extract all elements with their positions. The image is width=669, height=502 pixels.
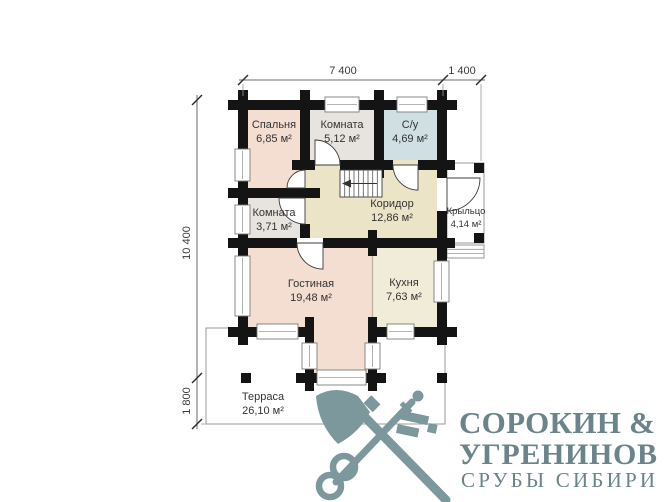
label-bedroom: Спальня xyxy=(252,119,296,131)
key-bow-ring xyxy=(319,475,341,497)
log-end-stub xyxy=(374,90,384,100)
label-living: Гостиная xyxy=(288,278,334,290)
dim-width-porch: 1 400 xyxy=(448,65,476,77)
porch-post xyxy=(474,233,484,243)
wall-bedroom-room xyxy=(300,100,310,160)
area-room2: 3,71 м² xyxy=(256,221,292,233)
area-corridor: 12,86 м² xyxy=(371,212,413,224)
wall-bath-corridor xyxy=(418,160,455,170)
wall-room2-right xyxy=(300,224,310,238)
staircase xyxy=(340,170,382,197)
floor-plan-page: Спальня 6,85 м² Комната 5,12 м² С/у 4,69… xyxy=(0,0,669,502)
wall-bedroom-bottom xyxy=(228,188,320,198)
log-end-stub xyxy=(368,230,377,238)
label-room2: Комната xyxy=(252,207,296,219)
label-corridor: Коридор xyxy=(370,198,413,210)
logo-line-1: СОРОКИН & xyxy=(459,405,655,440)
company-logo: СОРОКИН & УГРЕНИНОВ СРУБЫ СИБИРИ xyxy=(316,390,657,500)
key-tooth xyxy=(427,423,438,434)
area-bathroom: 4,69 м² xyxy=(392,133,428,145)
wall-room-corridor xyxy=(340,160,393,170)
label-terrace: Терраса xyxy=(242,391,285,403)
wall-corridor-living xyxy=(323,238,455,248)
terrace-post xyxy=(437,373,447,383)
terrace-post xyxy=(241,373,251,383)
log-end-stub xyxy=(368,317,377,327)
dim-width-main: 7 400 xyxy=(329,65,357,77)
wall-corridor-living xyxy=(228,238,297,248)
label-kitchen: Кухня xyxy=(389,277,418,289)
dim-height-terrace: 1 800 xyxy=(181,387,193,415)
log-end-stub xyxy=(437,337,447,345)
area-living: 19,48 м² xyxy=(290,292,332,304)
label-room: Комната xyxy=(320,119,364,131)
logo-line-2: УГРЕНИНОВ xyxy=(459,438,657,471)
label-porch: Крыльцо xyxy=(447,206,486,217)
area-bedroom: 6,85 м² xyxy=(256,133,292,145)
wall-room-bath xyxy=(374,100,384,178)
logo-line-3: СРУБЫ СИБИРИ xyxy=(461,468,655,492)
key-tooth xyxy=(396,424,419,437)
dim-height-main: 10 400 xyxy=(181,226,193,260)
area-kitchen: 7,63 м² xyxy=(386,291,422,303)
label-bathroom: С/у xyxy=(402,119,419,131)
logo-text: СОРОКИН & УГРЕНИНОВ СРУБЫ СИБИРИ xyxy=(459,405,657,492)
log-end-stub xyxy=(300,90,310,100)
log-end-stub xyxy=(305,317,314,327)
area-terrace: 26,10 м² xyxy=(242,405,284,417)
area-porch: 4,14 м² xyxy=(451,219,482,230)
porch-post xyxy=(474,163,484,173)
log-end-stub xyxy=(238,337,248,345)
floor-plan-svg: Спальня 6,85 м² Комната 5,12 м² С/у 4,69… xyxy=(0,0,669,502)
log-end-stub xyxy=(368,248,377,256)
area-room: 5,12 м² xyxy=(324,133,360,145)
wall-room-corridor xyxy=(292,160,315,170)
